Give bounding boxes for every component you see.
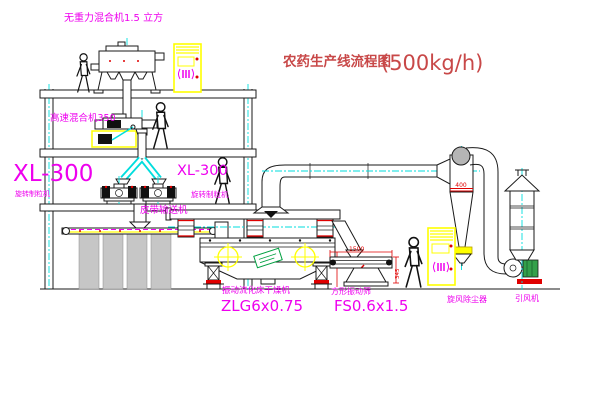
granulator-left-name: 旋转制粒机: [15, 189, 50, 198]
sieve-model-label: FS0.6x1.5: [334, 297, 408, 315]
y-split-pipe: [116, 159, 166, 184]
control-cabinet-right: [428, 228, 455, 285]
control-cabinet-top: [174, 44, 201, 92]
draft-fan-label: 引风机: [515, 293, 539, 303]
gravity-free-mixer: [91, 38, 164, 118]
granulator-right-machine: [140, 176, 176, 204]
granulator-left-model: XL-300: [13, 161, 93, 187]
dryer-model-label: ZLG6x0.75: [221, 297, 303, 315]
worker-figure-ground: [405, 238, 422, 287]
conveyor-support-panels: [79, 234, 171, 289]
high-speed-mixer-label: 高速混合机350: [50, 112, 116, 124]
sieve-height-dimension: 345: [395, 268, 401, 279]
fluidbed-dryer-machine: [166, 208, 342, 289]
sieve-name-label: 方形振动筛: [331, 286, 371, 296]
diagram-capacity: (500kg/h): [381, 51, 483, 75]
flow-diagram-canvas: 无重力混合机1.5 立方 农药生产线流程图 (500kg/h) 高速混合机350…: [0, 0, 600, 403]
induced-draft-fan-machine: [504, 259, 542, 284]
belt-conveyor-label: 皮带输送机: [140, 204, 188, 216]
granulator-left-machine: [101, 176, 137, 204]
gravity-mixer-label: 无重力混合机1.5 立方: [64, 11, 163, 24]
cyclone-dimension: 400: [455, 182, 467, 189]
vibrating-sieve-machine: [330, 250, 399, 286]
fan-and-stack: [466, 148, 542, 290]
cyclone-label: 旋风除尘器: [447, 294, 487, 304]
dryer-name-label: 振动流化床干燥机: [222, 285, 291, 296]
granulator-right-name: 旋转制粒机: [191, 189, 229, 199]
diagram-title: 农药生产线流程图: [282, 53, 391, 70]
worker-figure-roof: [77, 54, 90, 92]
sieve-length-dimension: 1500: [349, 246, 364, 253]
granulator-right-model: XL-300: [177, 163, 228, 179]
process-flow-drawing: 无重力混合机1.5 立方 农药生产线流程图 (500kg/h) 高速混合机350…: [0, 0, 600, 403]
